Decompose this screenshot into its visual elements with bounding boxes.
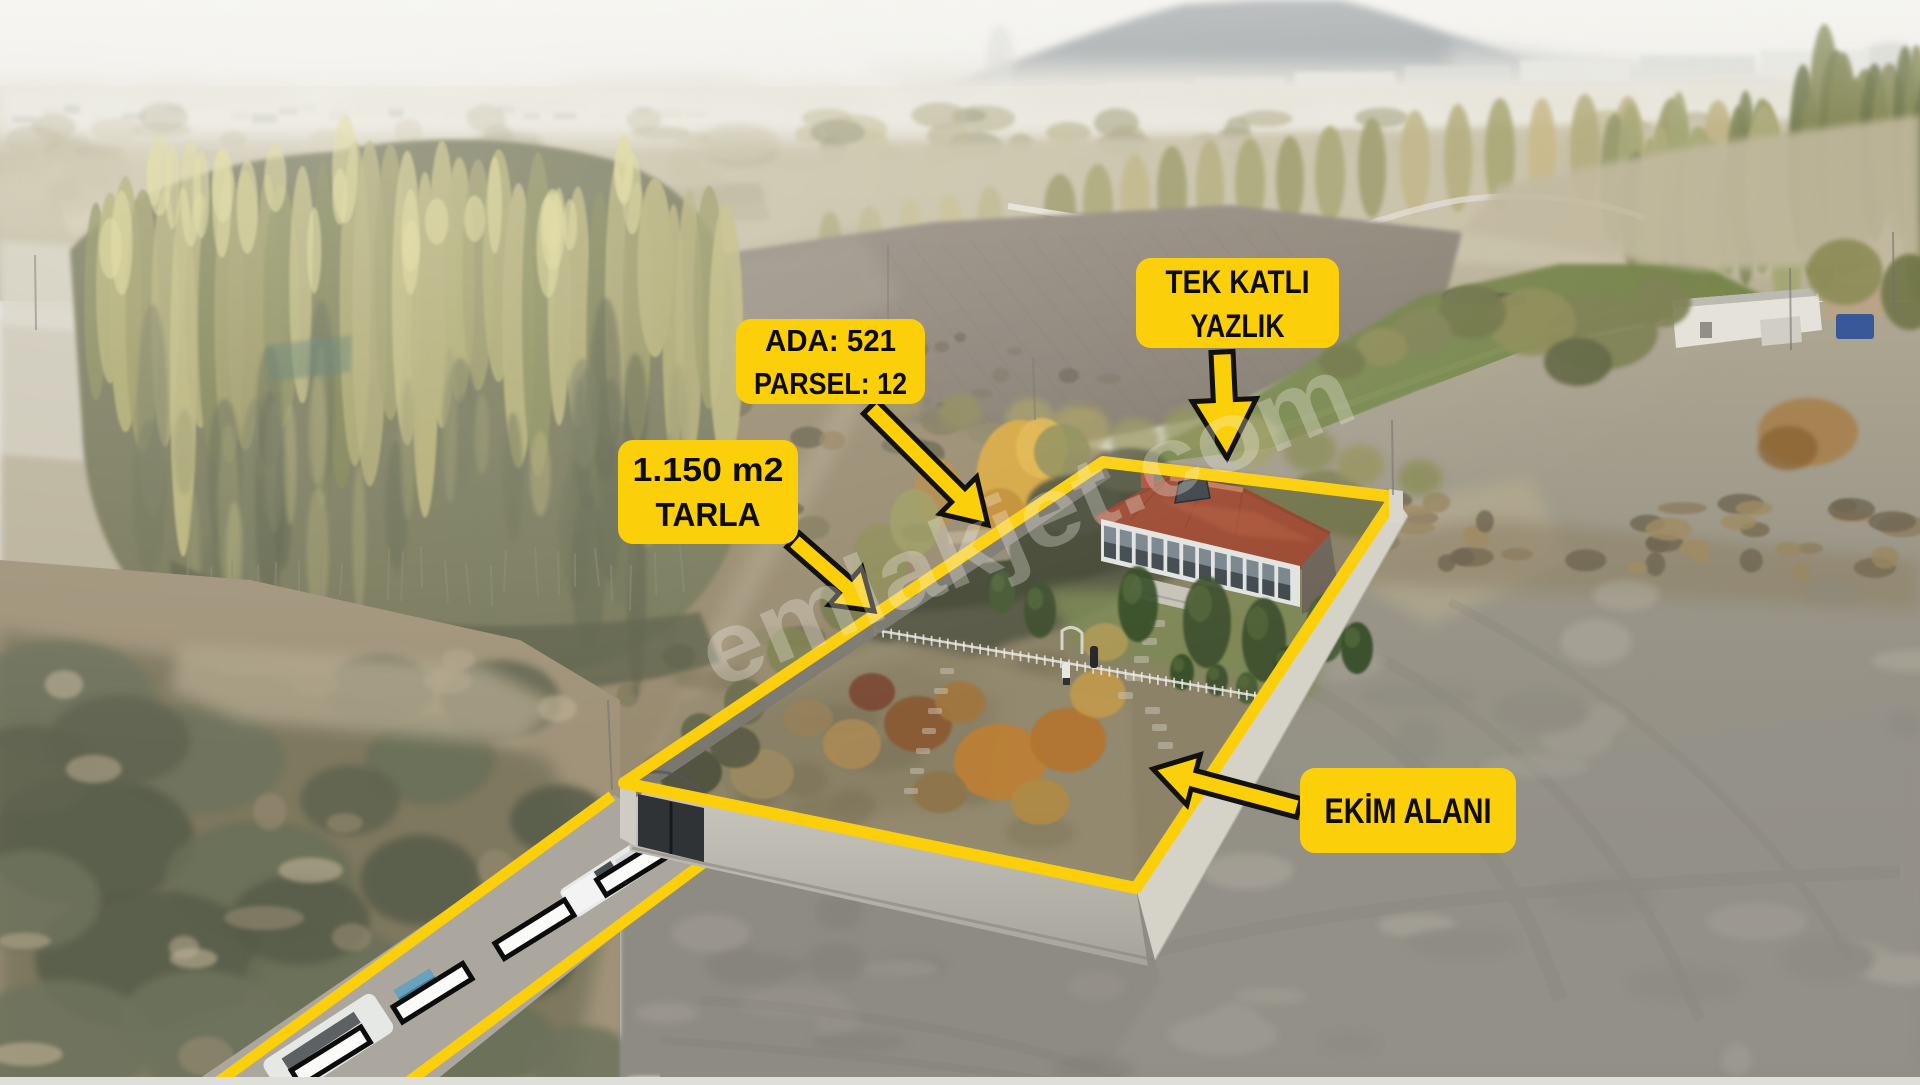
svg-text:PARSEL: 12: PARSEL: 12	[754, 366, 907, 401]
svg-text:1.150 m2: 1.150 m2	[633, 451, 784, 488]
svg-text:ADA: 521: ADA: 521	[765, 323, 896, 358]
svg-text:EKİM ALANI: EKİM ALANI	[1325, 792, 1492, 831]
svg-text:TEK KATLI: TEK KATLI	[1166, 264, 1310, 300]
svg-text:TARLA: TARLA	[656, 496, 761, 533]
svg-text:YAZLIK: YAZLIK	[1191, 308, 1285, 344]
